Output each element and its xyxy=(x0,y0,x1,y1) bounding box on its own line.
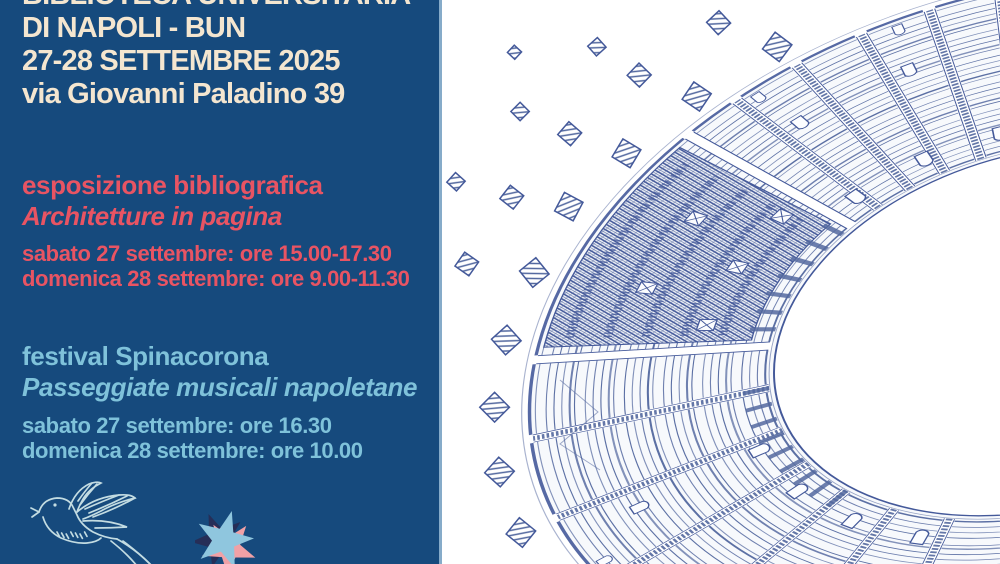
festival-label: festival Spinacorona xyxy=(22,341,429,372)
exhibition-heading: esposizione bibliografica Architetture i… xyxy=(22,170,429,232)
venue-line2: DI NAPOLI - BUN xyxy=(22,12,429,45)
event-dates: 27-28 SETTEMBRE 2025 xyxy=(22,45,429,78)
swallow-icon xyxy=(30,481,215,564)
festival-time-sunday: domenica 28 settembre: ore 10.00 xyxy=(22,438,429,463)
exhibition-time-sunday: domenica 28 settembre: ore 9.00-11.30 xyxy=(22,266,429,291)
festival-title: Passeggiate musicali napoletane xyxy=(22,372,429,403)
festival-time-saturday: sabato 27 settembre: ore 16.30 xyxy=(22,413,429,438)
exhibition-times: sabato 27 settembre: ore 15.00-17.30 dom… xyxy=(22,241,429,291)
exhibition-time-saturday: sabato 27 settembre: ore 15.00-17.30 xyxy=(22,241,429,266)
exhibition-title: Architetture in pagina xyxy=(22,201,429,232)
exhibition-label: esposizione bibliografica xyxy=(22,170,429,201)
venue-address: via Giovanni Paladino 39 xyxy=(22,78,429,111)
festival-times: sabato 27 settembre: ore 16.30 domenica … xyxy=(22,413,429,463)
info-panel: BIBLIOTECA UNIVERSITARIA DI NAPOLI - BUN… xyxy=(0,0,442,564)
venue-title: BIBLIOTECA UNIVERSITARIA DI NAPOLI - BUN… xyxy=(22,0,429,111)
star-icon xyxy=(195,507,269,564)
venue-line1: BIBLIOTECA UNIVERSITARIA xyxy=(22,0,429,12)
festival-heading: festival Spinacorona Passeggiate musical… xyxy=(22,341,429,403)
poster-root: BIBLIOTECA UNIVERSITARIA DI NAPOLI - BUN… xyxy=(0,0,1000,564)
